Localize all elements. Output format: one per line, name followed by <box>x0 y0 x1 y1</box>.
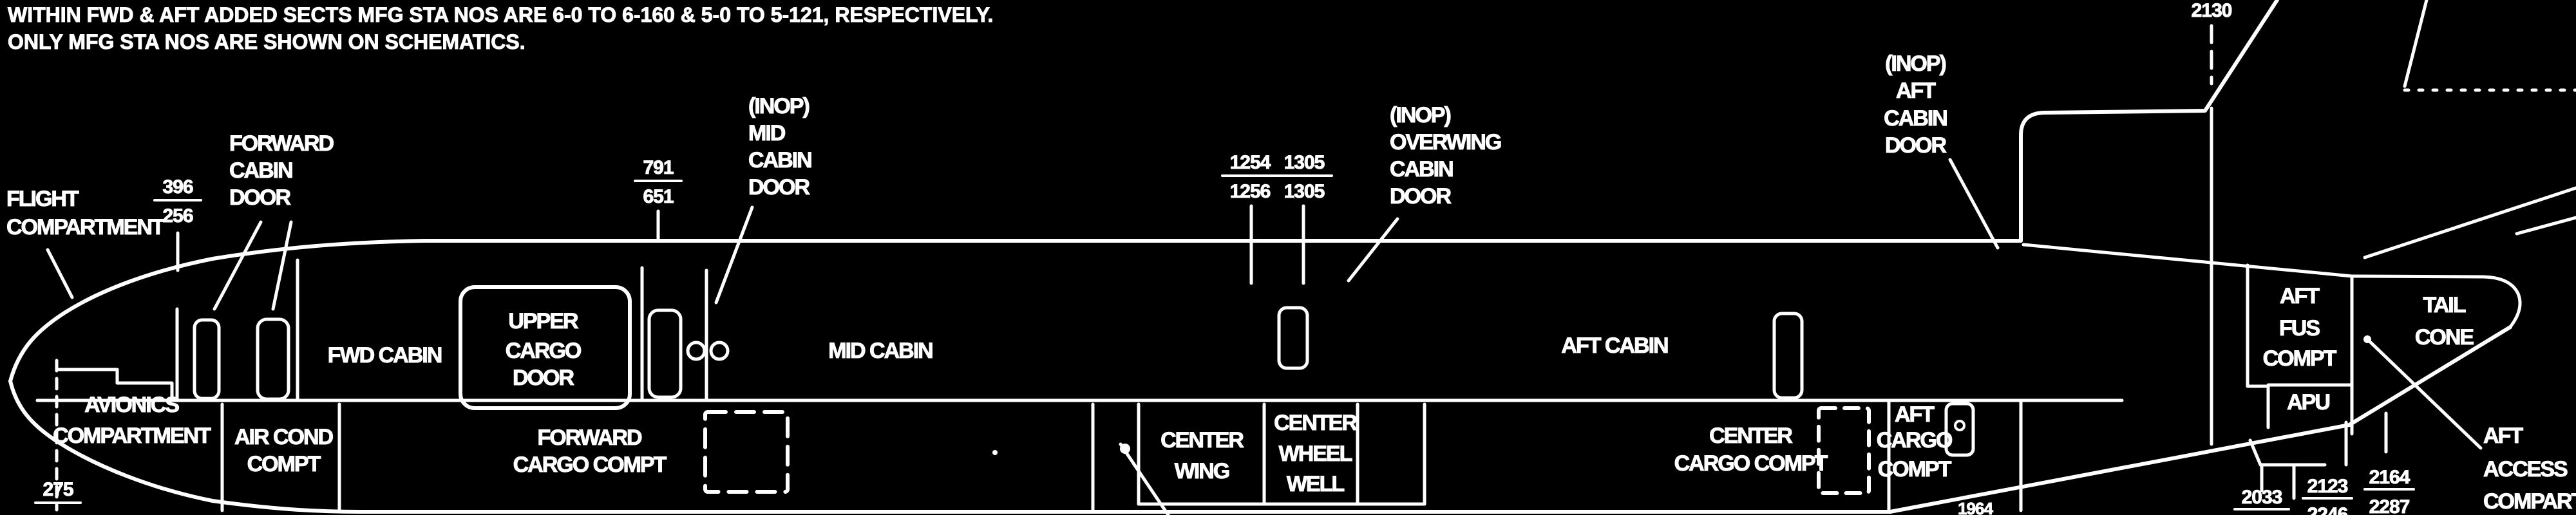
floor-reference-dot <box>992 450 998 455</box>
flight-compartment-leader <box>48 250 72 297</box>
cabin-window-2 <box>711 342 728 359</box>
overwing-cabin-door-label: (INOP) <box>1390 103 1450 127</box>
avionics-compartment-label: COMPARTMENT <box>53 424 211 448</box>
mid-cabin-door-leader <box>716 207 752 303</box>
overwing-cabin-door-label: CABIN <box>1390 157 1453 182</box>
station-top: 2164 <box>2369 467 2410 488</box>
station-top: 2033 <box>2242 487 2282 508</box>
station-top: 396 <box>162 176 193 198</box>
aft-fus-compt-label: COMPT <box>2263 346 2337 371</box>
flight-compartment-label: FLIGHT <box>6 187 79 211</box>
upper-cargo-door-label: DOOR <box>513 366 574 390</box>
station-top: 791 <box>643 157 673 178</box>
aft-cabin-label: AFT CABIN <box>1561 333 1668 358</box>
station-top: 1254 <box>1230 152 1271 173</box>
fin-trailing-edge <box>2405 0 2427 86</box>
forward-cabin-door-label: CABIN <box>229 158 292 183</box>
diagram-canvas: 275 135 396 256 791 651 1254 1256 1305 1… <box>0 0 2576 515</box>
aft-access-compartment-label: COMPARTMENT <box>2483 489 2576 514</box>
station-callout-2130: 2130 <box>2192 0 2232 444</box>
fin-base-riser <box>2021 0 2277 241</box>
station-top: 1305 <box>1284 152 1325 173</box>
aft-cabin-door-label: (INOP) <box>1885 51 1946 76</box>
overwing-cabin-door-label: DOOR <box>1390 184 1451 209</box>
compartment-labels: FLIGHT COMPARTMENT FORWARD CABIN DOOR (I… <box>6 51 2576 514</box>
aft-cabin-door-label: DOOR <box>1885 133 1946 158</box>
forward-entry-frame <box>194 320 219 398</box>
station-bottom: 2246 <box>2307 504 2348 515</box>
mid-cabin-door-outline <box>649 310 681 397</box>
station-top: 1964 <box>1958 499 1993 515</box>
note-line-1: WITHIN FWD & AFT ADDED SECTS MFG STA NOS… <box>8 3 993 26</box>
note-line-2: ONLY MFG STA NOS ARE SHOWN ON SCHEMATICS… <box>8 30 526 53</box>
forward-cargo-compt-label: CARGO COMPT <box>513 453 667 477</box>
aft-cabin-door-label: CABIN <box>1884 106 1947 131</box>
cabin-window-1 <box>688 342 705 359</box>
forward-cabin-door-label: FORWARD <box>229 131 334 156</box>
center-cargo-door-dashed <box>1819 408 1869 493</box>
overwing-cabin-door-leader <box>1349 219 1397 281</box>
stabilizer-edge-2 <box>2517 218 2576 234</box>
aft-access-compartment-label: AFT <box>2483 424 2523 448</box>
aft-cargo-compt-label: COMPT <box>1878 457 1952 482</box>
aft-bottom-taper <box>1890 327 2510 512</box>
station-callout-791: 791 651 <box>635 157 681 241</box>
air-cond-compt-label: AIR COND <box>234 425 334 449</box>
wing-attach-mark <box>1120 444 1130 454</box>
aft-cargo-compt-label: CARGO <box>1877 428 1953 453</box>
mid-cabin-door-label: CABIN <box>748 148 811 173</box>
station-top: 275 <box>43 479 73 500</box>
aft-cabin-door-outline <box>1774 314 1802 398</box>
mid-cabin-door-label: DOOR <box>748 175 810 200</box>
station-callout-1964: 1964 <box>1958 499 1993 515</box>
mid-cabin-door-label: (INOP) <box>748 94 809 118</box>
center-cargo-compt-label: CARGO COMPT <box>1674 451 1828 476</box>
bulk-cargo-door-handle <box>1955 421 1964 430</box>
flight-compartment-label: COMPARTMENT <box>6 215 165 239</box>
station-bottom: 256 <box>162 205 193 227</box>
center-wheel-well-label: WHEEL <box>1279 442 1352 466</box>
mid-cabin-label: MID CABIN <box>828 339 933 363</box>
stabilizer-leading-edge <box>2365 188 2576 257</box>
fuselage-station-diagram: 275 135 396 256 791 651 1254 1256 1305 1… <box>0 0 2576 515</box>
overwing-exit-outline <box>1279 308 1307 368</box>
aft-crown-slope <box>2023 245 2352 276</box>
aft-fus-compt-label: FUS <box>2279 316 2320 341</box>
center-wing-label: WING <box>1175 459 1229 483</box>
upper-cargo-door-label: UPPER <box>508 309 578 333</box>
overwing-cabin-door-label: OVERWING <box>1390 130 1501 154</box>
station-top: 2123 <box>2307 476 2348 497</box>
general-notes: WITHIN FWD & AFT ADDED SECTS MFG STA NOS… <box>8 3 993 53</box>
station-bottom: 1305 <box>1284 181 1325 202</box>
aft-cargo-compt-label: AFT <box>1895 402 1935 427</box>
fuselage-top-line <box>10 241 2021 381</box>
aft-cabin-door-label: AFT <box>1896 79 1936 103</box>
tail-cone-label: CONE <box>2415 325 2474 350</box>
air-cond-compt-label: COMPT <box>247 452 321 476</box>
avionics-compartment-label: AVIONICS <box>84 393 179 417</box>
mid-cabin-door-label: MID <box>748 121 786 145</box>
station-bottom: 1256 <box>1230 181 1271 202</box>
station-bottom: 651 <box>643 186 673 207</box>
forward-cabin-door-label: DOOR <box>229 185 290 210</box>
station-top: 2130 <box>2192 0 2232 21</box>
station-callout-2123: 2123 2246 <box>2303 476 2352 515</box>
center-wing-label: CENTER <box>1160 428 1244 453</box>
station-callout-1305: 1305 1305 <box>1276 152 1332 283</box>
forward-cargo-door-dashed <box>705 412 788 492</box>
center-wheel-well-label: WELL <box>1287 472 1345 496</box>
forward-cargo-compt-label: FORWARD <box>537 426 641 450</box>
station-callout-2164: 2164 2287 <box>2365 467 2414 515</box>
forward-cabin-door-leader-1 <box>214 222 261 309</box>
center-wheel-well-label: CENTER <box>1274 411 1357 435</box>
station-callout-1254: 1254 1256 <box>1222 152 1278 283</box>
apu-label: APU <box>2287 390 2329 415</box>
aft-fus-compt-label: AFT <box>2280 284 2320 308</box>
aft-cabin-door-leader <box>1950 160 1998 248</box>
tail-cone-label: TAIL <box>2423 293 2465 317</box>
aft-access-compartment-label: ACCESS <box>2483 457 2568 482</box>
station-callout-2033: 2033 2156 <box>2235 487 2289 515</box>
forward-cabin-door-outline <box>258 319 289 399</box>
forward-cabin-door-leader-2 <box>273 222 291 309</box>
center-cargo-compt-label: CENTER <box>1709 424 1792 448</box>
fwd-cabin-label: FWD CABIN <box>328 343 442 368</box>
upper-cargo-door-label: CARGO <box>506 339 582 363</box>
station-bottom: 2287 <box>2369 496 2410 515</box>
